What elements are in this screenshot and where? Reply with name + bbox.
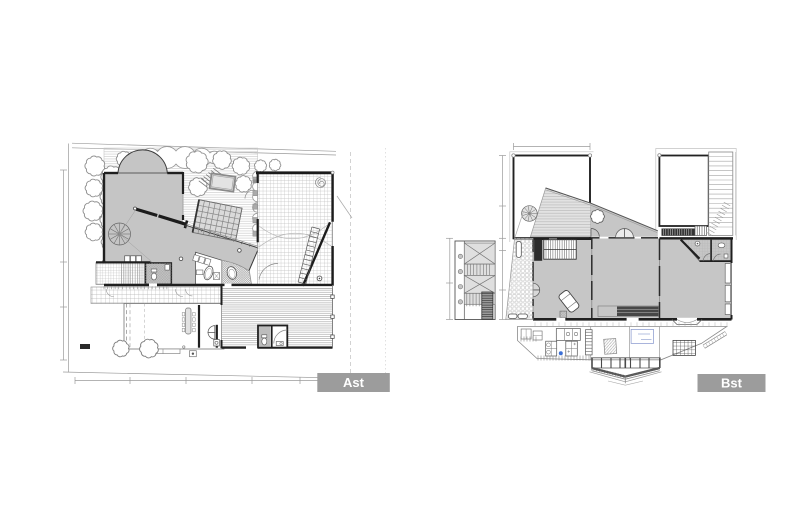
svg-text:Ast: Ast bbox=[343, 375, 365, 390]
svg-text:Bst: Bst bbox=[721, 376, 743, 391]
